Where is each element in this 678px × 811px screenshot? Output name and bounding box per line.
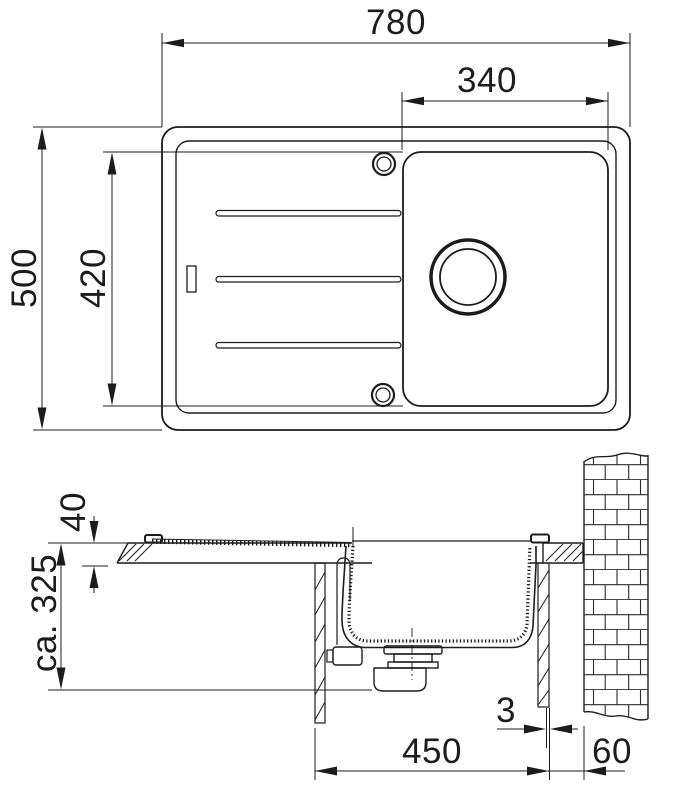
brick-wall [584,452,648,724]
tap-hole-bottom [372,384,394,406]
dimension-bowl-depth: 420 [74,152,403,406]
strainer-body [394,654,432,662]
dim-420-label: 420 [74,248,113,308]
bowl-wall-stipple [349,546,530,641]
dimension-wall-clearance: 60 [584,732,632,776]
dim-ca325-label: ca. 325 [25,554,64,672]
countertop [117,543,583,563]
drainboard-surface-top [152,539,351,543]
sink-section-profile [145,527,549,648]
tap-hole-inner-ring [377,157,391,171]
brick-pattern [584,452,648,724]
tap-hole-top [373,153,395,175]
drainboard-groove [216,277,401,283]
dimension-cabinet-width: 450 [315,726,625,780]
dim-340-label: 340 [457,61,517,100]
dim-500-label: 500 [5,248,44,308]
countertop-left-piece [117,543,372,563]
dim-780-label: 780 [366,3,426,42]
drainboard-grooves [216,211,401,349]
drawing-canvas: 780 340 500 420 [0,0,678,811]
drain-trap-assembly [327,628,442,691]
countertop-hatch-lines [119,544,583,561]
tap-hole-inner-ring [376,388,390,402]
sink-outer-edge [162,127,630,430]
sink-right-lip [531,535,549,543]
drain-outer-ring [431,240,505,314]
drain-inner-ring [440,249,496,305]
drainboard-groove [216,343,401,349]
strainer-base [388,662,438,668]
dim-3-label: 3 [496,691,516,730]
bowl-wall-outer [342,546,536,648]
dimension-overall-width: 780 [162,3,630,127]
dim-450-label: 450 [402,732,462,771]
waste-elbow [333,647,362,665]
sink-technical-drawing: 780 340 500 420 [0,0,678,811]
waste-elbow-cap [327,650,333,662]
dimension-edge-gap: 3 [496,691,578,780]
dim-60-label: 60 [592,732,632,771]
tap-hole-outer-ring [373,153,395,175]
drainboard-groove [216,211,401,217]
dimension-install-depth: ca. 325 [25,544,372,691]
dim-40-label: 40 [54,492,93,532]
trap-cup [374,668,426,691]
dimension-bowl-width: 340 [402,61,608,150]
drain-opening [431,240,505,314]
sink-section-view: 40 ca. 325 3 450 60 [25,452,648,780]
sink-plan-view [162,127,630,430]
overflow-slot [187,266,196,292]
tap-hole-outer-ring [372,384,394,406]
